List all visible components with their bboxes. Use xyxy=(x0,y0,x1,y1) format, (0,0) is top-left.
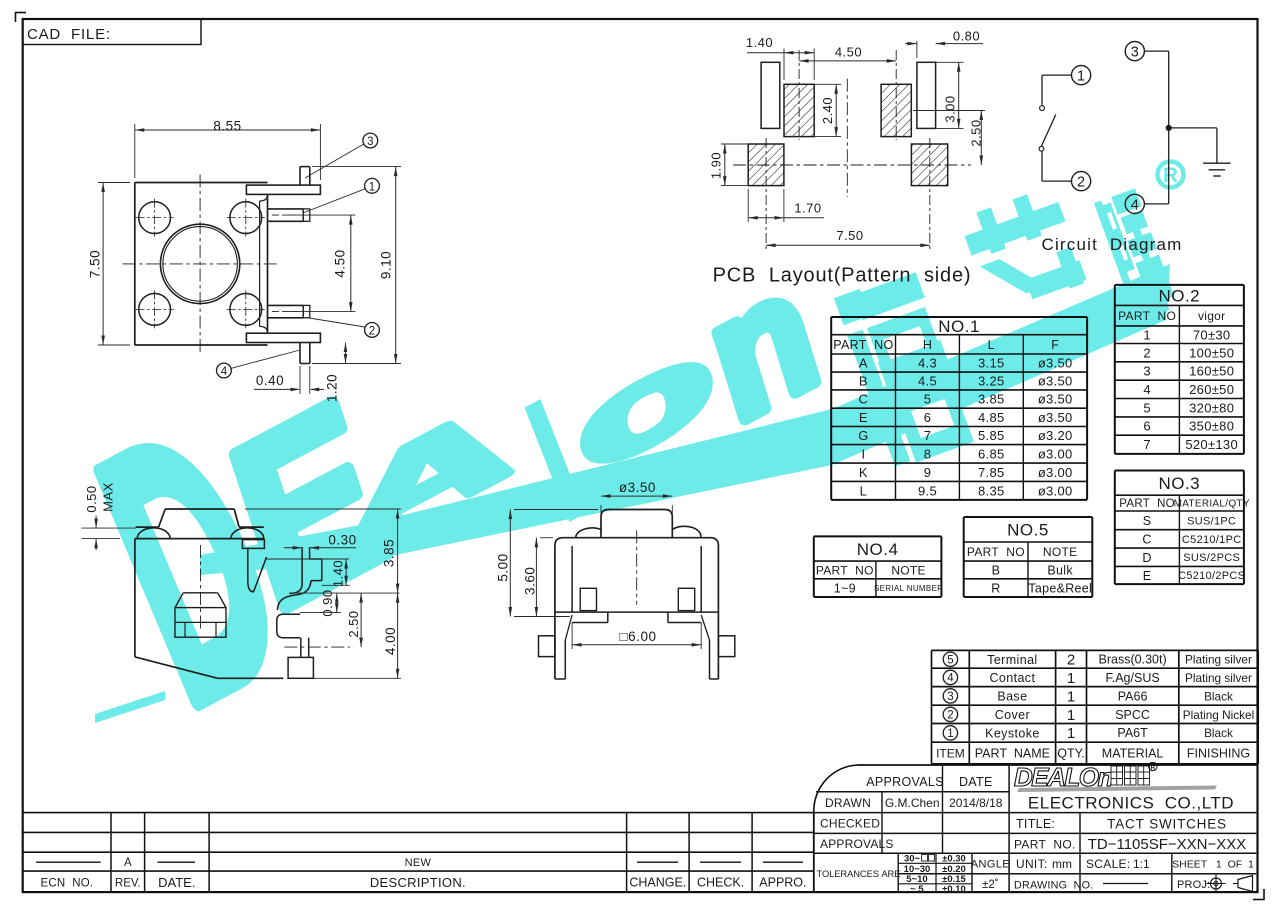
svg-text:L: L xyxy=(860,483,868,498)
svg-text:0.40: 0.40 xyxy=(256,373,284,388)
svg-text:SERIAL NUMBER: SERIAL NUMBER xyxy=(874,584,943,593)
svg-text:4.3: 4.3 xyxy=(918,356,937,371)
svg-text:S: S xyxy=(1143,514,1152,528)
svg-text:Circuit Diagram: Circuit Diagram xyxy=(1041,235,1182,254)
svg-text:1: 1 xyxy=(1143,327,1151,342)
svg-text:320±80: 320±80 xyxy=(1189,400,1234,415)
svg-text:3: 3 xyxy=(367,136,373,148)
svg-text:1:1: 1:1 xyxy=(1133,857,1150,871)
svg-text:9.10: 9.10 xyxy=(379,251,394,279)
svg-text:H: H xyxy=(923,338,932,352)
svg-text:NO.1: NO.1 xyxy=(938,317,980,336)
svg-text:NO.3: NO.3 xyxy=(1158,474,1200,493)
svg-text:5: 5 xyxy=(947,655,953,667)
svg-text:PART NO.: PART NO. xyxy=(1014,838,1076,852)
svg-text:160±50: 160±50 xyxy=(1189,364,1234,379)
svg-text:4.5: 4.5 xyxy=(918,374,937,389)
svg-text:3.85: 3.85 xyxy=(382,539,397,567)
svg-text:R: R xyxy=(1150,764,1155,771)
svg-text:3.00: 3.00 xyxy=(943,95,958,122)
svg-text:A: A xyxy=(859,356,868,371)
svg-text:NOTE: NOTE xyxy=(891,563,926,577)
svg-text:Plating Nickel: Plating Nickel xyxy=(1183,708,1254,722)
svg-text:L: L xyxy=(988,338,995,352)
svg-text:APPROVALS: APPROVALS xyxy=(820,837,894,851)
svg-text:1: 1 xyxy=(947,728,953,740)
svg-text:Black: Black xyxy=(1204,689,1233,703)
svg-text:4: 4 xyxy=(221,366,228,378)
svg-text:ø3.00: ø3.00 xyxy=(1038,483,1073,498)
svg-text:CAD FILE:: CAD FILE: xyxy=(27,26,111,43)
svg-text:7.85: 7.85 xyxy=(978,465,1005,480)
svg-text:1: 1 xyxy=(1067,725,1075,742)
svg-text:1: 1 xyxy=(1067,707,1075,724)
svg-text:3: 3 xyxy=(947,691,953,703)
svg-text:3.15: 3.15 xyxy=(978,356,1005,371)
svg-text:9: 9 xyxy=(924,465,932,480)
svg-text:MATERIAL: MATERIAL xyxy=(1102,746,1164,760)
svg-text:G: G xyxy=(858,428,868,443)
svg-text:ANGLE: ANGLE xyxy=(971,859,1011,871)
svg-text:PART NO: PART NO xyxy=(816,563,874,577)
svg-text:Black: Black xyxy=(1204,726,1233,740)
svg-text:Terminal: Terminal xyxy=(987,653,1037,667)
svg-text:C5210/2PCS: C5210/2PCS xyxy=(1178,570,1245,582)
svg-text:±0.10: ±0.10 xyxy=(942,884,966,895)
svg-text:PCB Layout(Pattern side): PCB Layout(Pattern side) xyxy=(713,265,972,287)
svg-text:MATERIAL/QTY: MATERIAL/QTY xyxy=(1174,499,1250,510)
svg-text:vigor: vigor xyxy=(1198,309,1226,323)
svg-text:B: B xyxy=(859,374,868,389)
svg-text:6: 6 xyxy=(924,410,932,425)
svg-text:100±50: 100±50 xyxy=(1189,345,1234,360)
svg-text:E: E xyxy=(859,410,868,425)
svg-text:ECN NO.: ECN NO. xyxy=(41,878,94,890)
svg-text:E: E xyxy=(1143,569,1152,583)
svg-text:520±130: 520±130 xyxy=(1185,437,1238,452)
svg-text:7: 7 xyxy=(924,428,932,443)
svg-text:ø3.50: ø3.50 xyxy=(619,480,656,495)
svg-text:K: K xyxy=(859,465,868,480)
svg-text:SHEET 1 OF 1: SHEET 1 OF 1 xyxy=(1172,859,1254,871)
svg-text:PART NO: PART NO xyxy=(1119,498,1175,510)
svg-text:SUS/1PC: SUS/1PC xyxy=(1187,515,1236,527)
svg-text:ø3.00: ø3.00 xyxy=(1038,465,1073,480)
svg-text:C: C xyxy=(859,392,869,407)
svg-text:5: 5 xyxy=(1143,400,1151,415)
svg-text:PA66: PA66 xyxy=(1118,689,1148,703)
svg-text:ø3.20: ø3.20 xyxy=(1038,428,1073,443)
svg-text:3.60: 3.60 xyxy=(523,567,538,595)
svg-text:260±50: 260±50 xyxy=(1189,382,1234,397)
svg-text:mm: mm xyxy=(1052,857,1072,871)
svg-text:4.50: 4.50 xyxy=(835,45,862,60)
svg-text:D: D xyxy=(1142,551,1151,565)
svg-text:ITEM: ITEM xyxy=(936,746,965,760)
svg-text:□6.00: □6.00 xyxy=(620,629,657,644)
svg-text:4.50: 4.50 xyxy=(333,249,348,277)
svg-text:0.50: 0.50 xyxy=(84,485,99,512)
svg-text:CHECK.: CHECK. xyxy=(697,876,744,890)
svg-text:0.30: 0.30 xyxy=(328,533,356,548)
svg-text:Keystoke: Keystoke xyxy=(985,727,1040,741)
svg-text:Base: Base xyxy=(997,690,1027,704)
svg-text:ø3.50: ø3.50 xyxy=(1038,374,1073,389)
svg-text:1.70: 1.70 xyxy=(794,201,821,216)
svg-text:TITLE:: TITLE: xyxy=(1016,817,1055,831)
svg-text:QTY.: QTY. xyxy=(1057,746,1085,760)
svg-text:Plating silver: Plating silver xyxy=(1185,671,1252,685)
svg-text:ø3.00: ø3.00 xyxy=(1038,447,1073,462)
svg-text:PART NAME: PART NAME xyxy=(975,746,1050,760)
svg-text:0.80: 0.80 xyxy=(953,29,980,44)
svg-text:DEALOn: DEALOn xyxy=(1014,762,1113,792)
svg-text:A: A xyxy=(124,857,132,869)
svg-text:6: 6 xyxy=(1143,419,1151,434)
svg-text:350±80: 350±80 xyxy=(1189,419,1234,434)
svg-text:DATE: DATE xyxy=(959,775,993,789)
svg-text:TOLERANCES ARE: TOLERANCES ARE xyxy=(817,868,901,879)
svg-text:TACT SWITCHES: TACT SWITCHES xyxy=(1107,817,1227,832)
svg-text:2: 2 xyxy=(369,325,375,337)
svg-text:2: 2 xyxy=(947,710,953,722)
svg-text:ø3.50: ø3.50 xyxy=(1038,410,1073,425)
svg-text:3.25: 3.25 xyxy=(978,374,1005,389)
svg-text:4.00: 4.00 xyxy=(383,627,398,655)
svg-text:F.Ag/SUS: F.Ag/SUS xyxy=(1106,671,1160,685)
svg-text:REV.: REV. xyxy=(115,878,141,890)
svg-text:SPCC: SPCC xyxy=(1115,708,1150,722)
svg-text:DRAWN: DRAWN xyxy=(825,796,871,810)
svg-text:1: 1 xyxy=(1067,670,1075,687)
svg-text:1.40: 1.40 xyxy=(746,35,773,50)
svg-text:3.85: 3.85 xyxy=(978,392,1005,407)
svg-text:70±30: 70±30 xyxy=(1193,327,1231,342)
svg-text:1.20: 1.20 xyxy=(325,374,340,402)
svg-text:MAX: MAX xyxy=(101,482,116,512)
svg-text:4: 4 xyxy=(1131,197,1139,213)
svg-text:C: C xyxy=(1142,532,1151,546)
svg-text:2.50: 2.50 xyxy=(346,610,361,637)
svg-text:2.40: 2.40 xyxy=(820,97,835,124)
svg-text:8.55: 8.55 xyxy=(213,119,241,134)
svg-text:APPROVALS: APPROVALS xyxy=(866,775,944,789)
svg-text:1~9: 1~9 xyxy=(834,581,856,595)
svg-text:DRAWING NO.: DRAWING NO. xyxy=(1014,880,1093,892)
svg-text:TD−1105SF−XXN−XXX: TD−1105SF−XXN−XXX xyxy=(1088,836,1247,853)
svg-text:APPRO.: APPRO. xyxy=(759,876,806,890)
svg-text:9.5: 9.5 xyxy=(918,483,937,498)
svg-text:NO.5: NO.5 xyxy=(1007,521,1049,540)
svg-text:4: 4 xyxy=(947,673,954,685)
svg-text:I: I xyxy=(861,447,865,462)
svg-text:~ 5: ~ 5 xyxy=(910,884,924,895)
svg-text:1: 1 xyxy=(1077,69,1085,85)
svg-text:DESCRIPTION.: DESCRIPTION. xyxy=(370,875,466,890)
svg-text:SUS/2PCS: SUS/2PCS xyxy=(1183,552,1240,564)
svg-text:Tape&Reel: Tape&Reel xyxy=(1028,581,1092,595)
svg-text:F: F xyxy=(1051,338,1059,352)
svg-text:7: 7 xyxy=(1143,437,1151,452)
svg-text:G.M.Chen: G.M.Chen xyxy=(885,796,940,810)
svg-text:2.50: 2.50 xyxy=(969,119,984,146)
svg-text:ELECTRONICS CO.,LTD: ELECTRONICS CO.,LTD xyxy=(1028,794,1234,813)
svg-text:UNIT:: UNIT: xyxy=(1016,857,1048,871)
svg-text:2: 2 xyxy=(1067,652,1075,669)
svg-text:NOTE: NOTE xyxy=(1043,545,1078,559)
svg-text:ø3.50: ø3.50 xyxy=(1038,356,1073,371)
svg-text:2014/8/18: 2014/8/18 xyxy=(949,796,1003,810)
svg-text:C5210/1PC: C5210/1PC xyxy=(1182,534,1242,546)
svg-text:CHANGE.: CHANGE. xyxy=(629,876,686,890)
svg-text:2: 2 xyxy=(1077,175,1085,191)
svg-text:1: 1 xyxy=(1067,688,1075,705)
svg-text:8: 8 xyxy=(924,447,932,462)
svg-text:Contact: Contact xyxy=(989,671,1035,685)
svg-text:1.90: 1.90 xyxy=(709,152,724,179)
svg-text:3: 3 xyxy=(1131,45,1139,61)
svg-text:SCALE:: SCALE: xyxy=(1086,857,1131,871)
svg-text:ø3.50: ø3.50 xyxy=(1038,392,1073,407)
svg-text:7.50: 7.50 xyxy=(836,228,863,243)
svg-text:5: 5 xyxy=(924,392,932,407)
svg-text:Cover: Cover xyxy=(995,708,1030,722)
svg-text:7.50: 7.50 xyxy=(88,250,103,278)
svg-text:3: 3 xyxy=(1143,364,1151,379)
svg-text:1: 1 xyxy=(369,181,375,193)
svg-text:DATE.: DATE. xyxy=(158,875,195,890)
svg-text:R: R xyxy=(1163,164,1178,187)
svg-text:8.35: 8.35 xyxy=(978,483,1005,498)
svg-text:PART NO: PART NO xyxy=(967,545,1025,559)
svg-text:B: B xyxy=(992,564,1001,578)
svg-text:PART NO: PART NO xyxy=(833,338,893,352)
svg-text:PART NO: PART NO xyxy=(1118,309,1176,323)
svg-text:2: 2 xyxy=(1143,345,1151,360)
svg-text:Plating silver: Plating silver xyxy=(1185,653,1252,667)
svg-text:5.85: 5.85 xyxy=(978,428,1005,443)
svg-text:6.85: 6.85 xyxy=(978,447,1005,462)
svg-text:NO.4: NO.4 xyxy=(857,540,899,559)
svg-text:NO.2: NO.2 xyxy=(1158,286,1200,305)
svg-text:PA6T: PA6T xyxy=(1117,726,1148,740)
svg-text:5.00: 5.00 xyxy=(496,553,511,581)
svg-text:Brass(0.30t): Brass(0.30t) xyxy=(1099,653,1167,667)
svg-text:PROJ:: PROJ: xyxy=(1177,879,1210,891)
svg-text:CHECKED: CHECKED xyxy=(820,817,880,831)
svg-text:4: 4 xyxy=(1143,382,1151,397)
svg-text:FINISHING: FINISHING xyxy=(1187,746,1250,760)
svg-text:±2˚: ±2˚ xyxy=(982,879,999,891)
svg-text:4.85: 4.85 xyxy=(978,410,1005,425)
svg-text:Bulk: Bulk xyxy=(1047,564,1073,578)
svg-text:0.90: 0.90 xyxy=(320,589,335,616)
svg-text:R: R xyxy=(991,581,1000,595)
svg-text:1.40: 1.40 xyxy=(331,560,346,587)
svg-text:NEW: NEW xyxy=(405,857,432,869)
